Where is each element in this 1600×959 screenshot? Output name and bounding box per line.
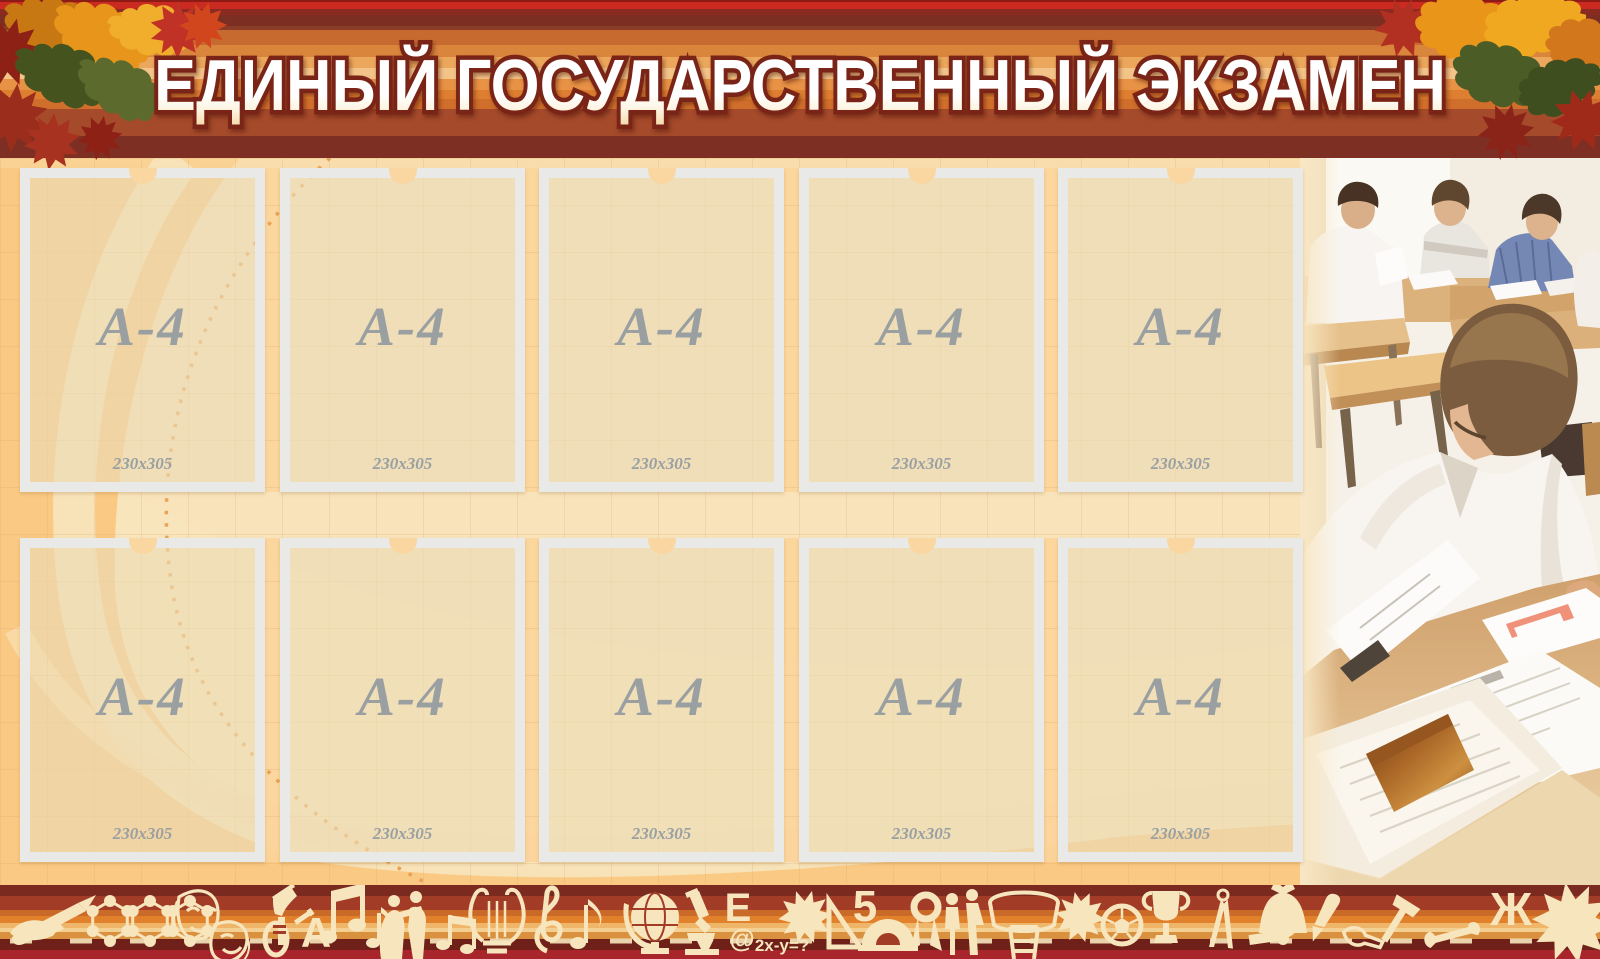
svg-text:2x-y=?: 2x-y=? [755, 936, 809, 955]
svg-text:@: @ [729, 923, 754, 953]
svg-text:Ж: Ж [1489, 885, 1532, 935]
svg-text:ЕДИНЫЙ ГОСУДАРСТВЕННЫЙ ЭКЗАМЕН: ЕДИНЫЙ ГОСУДАРСТВЕННЫЙ ЭКЗАМЕН [154, 44, 1446, 126]
